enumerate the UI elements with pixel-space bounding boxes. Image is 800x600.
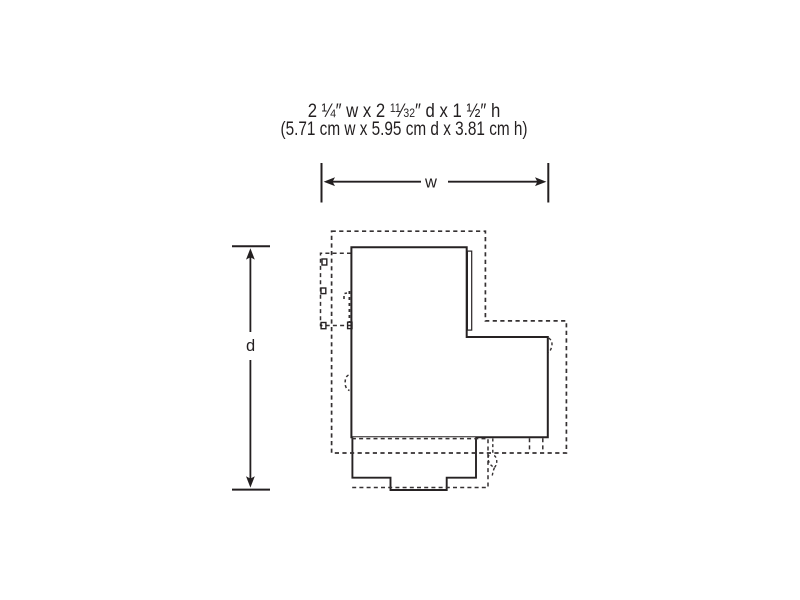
- svg-text:d: d: [246, 337, 255, 355]
- svg-text:w: w: [424, 174, 437, 192]
